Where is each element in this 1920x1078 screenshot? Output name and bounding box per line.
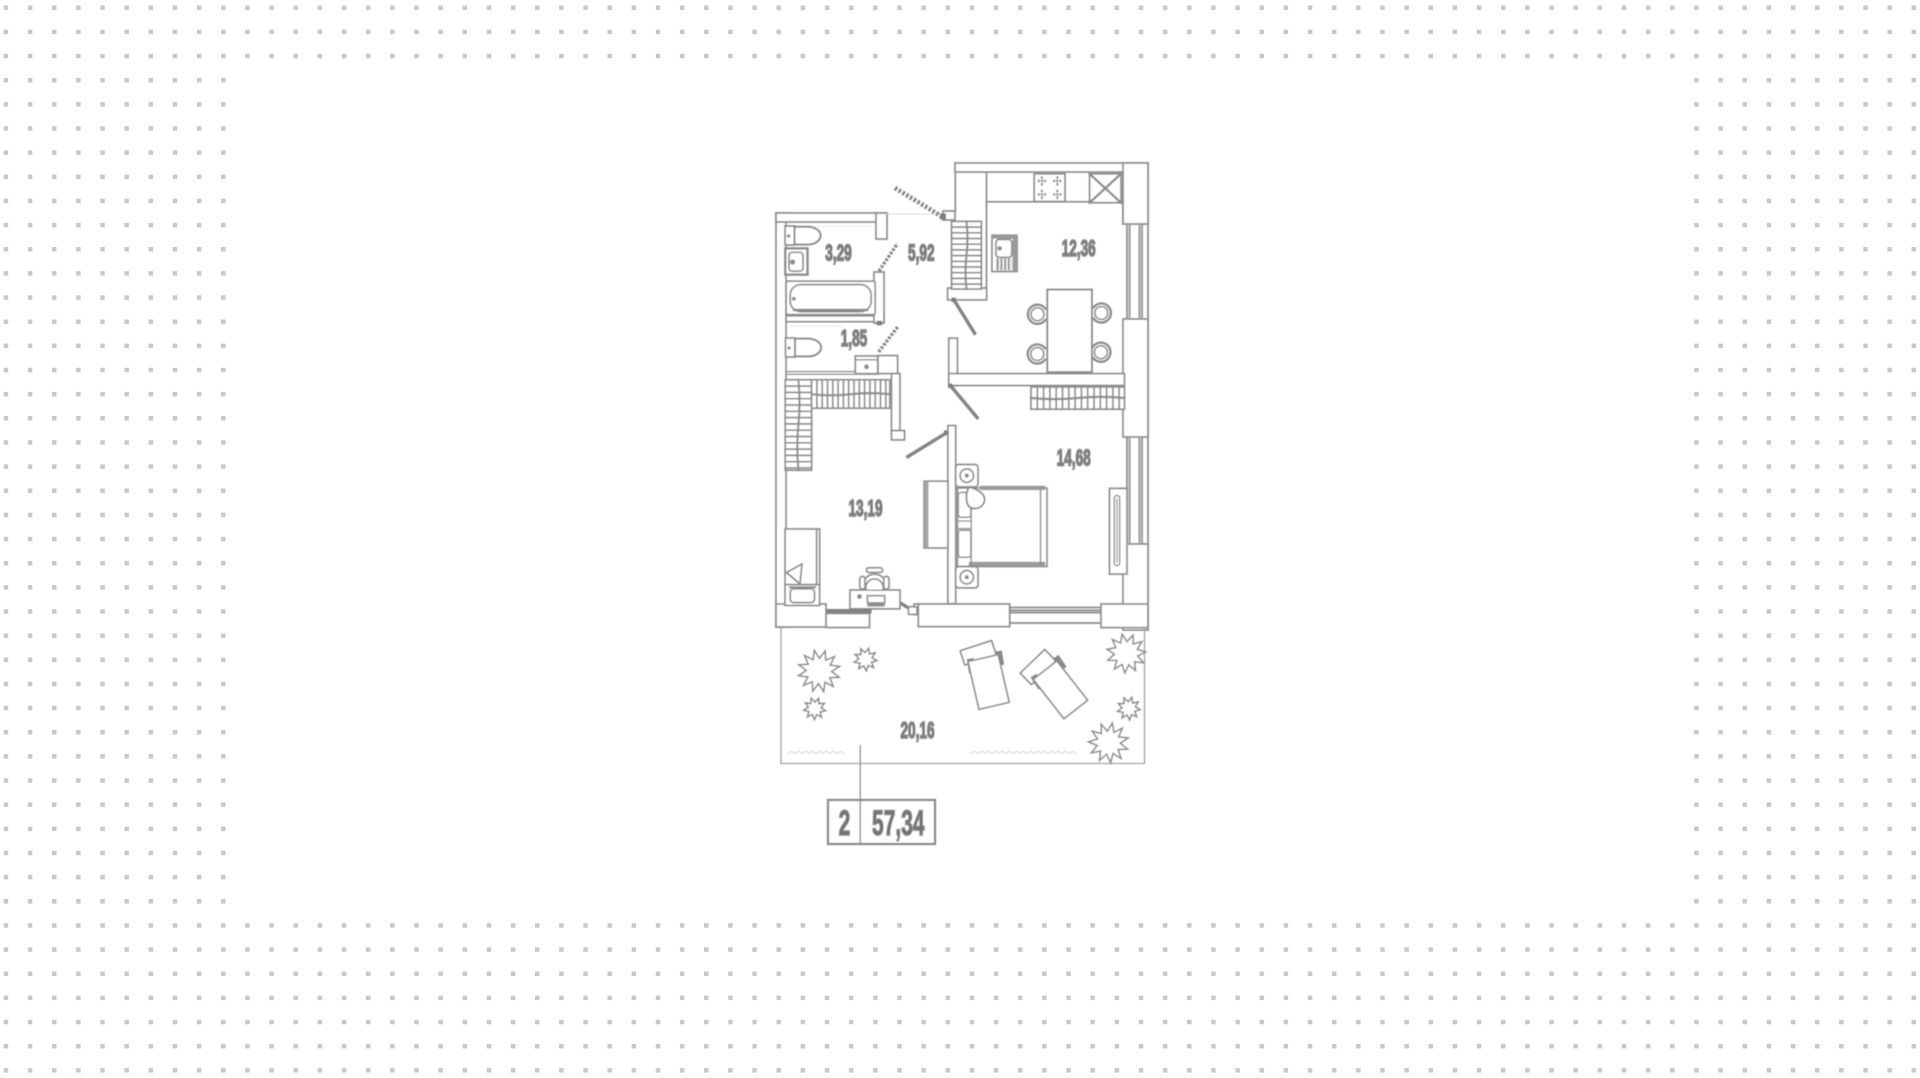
svg-text:13,19: 13,19 (848, 497, 882, 523)
svg-text:5,92: 5,92 (908, 241, 935, 267)
svg-text:2: 2 (839, 805, 851, 844)
svg-text:57,34: 57,34 (872, 805, 925, 844)
svg-text:12,36: 12,36 (1062, 237, 1096, 263)
svg-text:1,85: 1,85 (841, 326, 868, 352)
svg-text:20,16: 20,16 (900, 718, 934, 744)
svg-text:14,68: 14,68 (1057, 446, 1091, 472)
svg-text:3,29: 3,29 (825, 241, 852, 267)
